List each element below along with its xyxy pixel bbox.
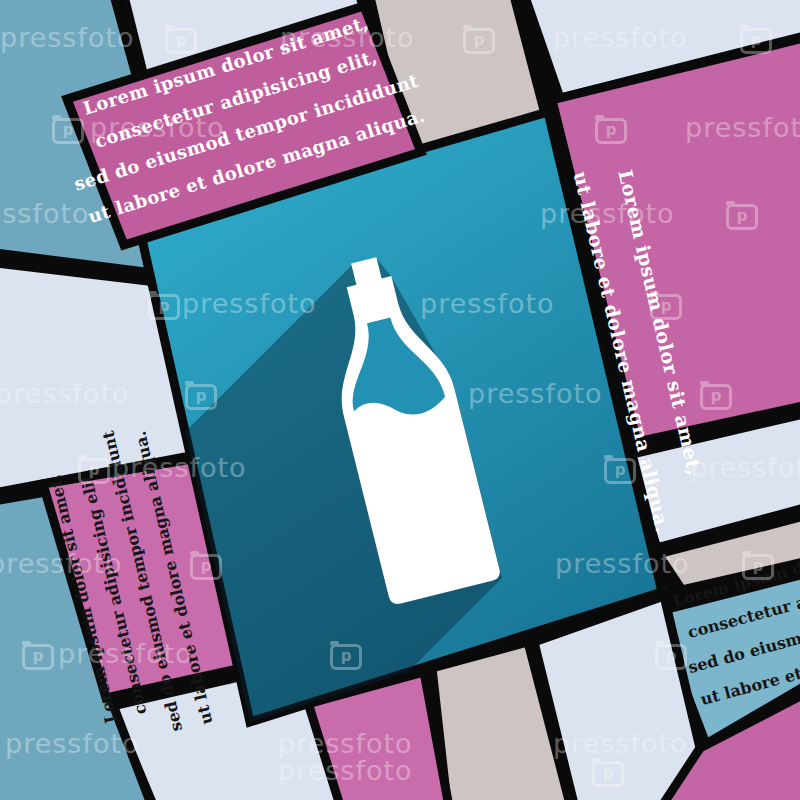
flat-mosaic-illustration: Lorem ipsum dolor sit amet,consectetur a… (0, 0, 800, 800)
